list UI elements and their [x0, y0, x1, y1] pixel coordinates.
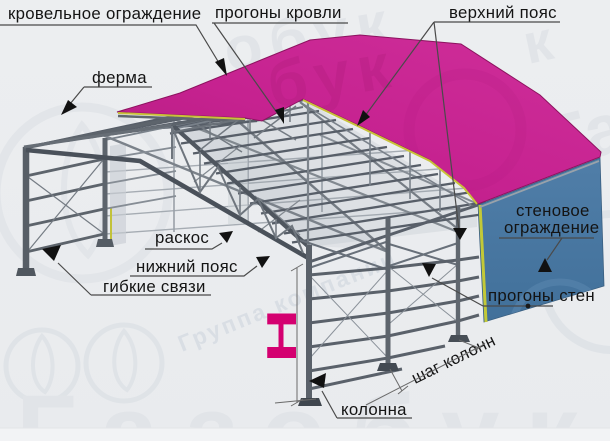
- svg-text:кровельное ограждение: кровельное ограждение: [8, 4, 201, 23]
- svg-text:верхний пояс: верхний пояс: [449, 3, 557, 22]
- svg-text:прогоны стен: прогоны стен: [488, 286, 595, 305]
- svg-text:раскос: раскос: [155, 228, 209, 247]
- svg-text:ферма: ферма: [92, 68, 147, 87]
- svg-text:нижний пояс: нижний пояс: [136, 257, 238, 276]
- svg-text:колонна: колонна: [341, 400, 407, 419]
- svg-text:гибкие связи: гибкие связи: [103, 277, 206, 296]
- svg-text:ограждение: ограждение: [504, 218, 599, 237]
- svg-text:прогоны кровли: прогоны кровли: [215, 3, 342, 22]
- svg-text:Н: Н: [258, 308, 305, 363]
